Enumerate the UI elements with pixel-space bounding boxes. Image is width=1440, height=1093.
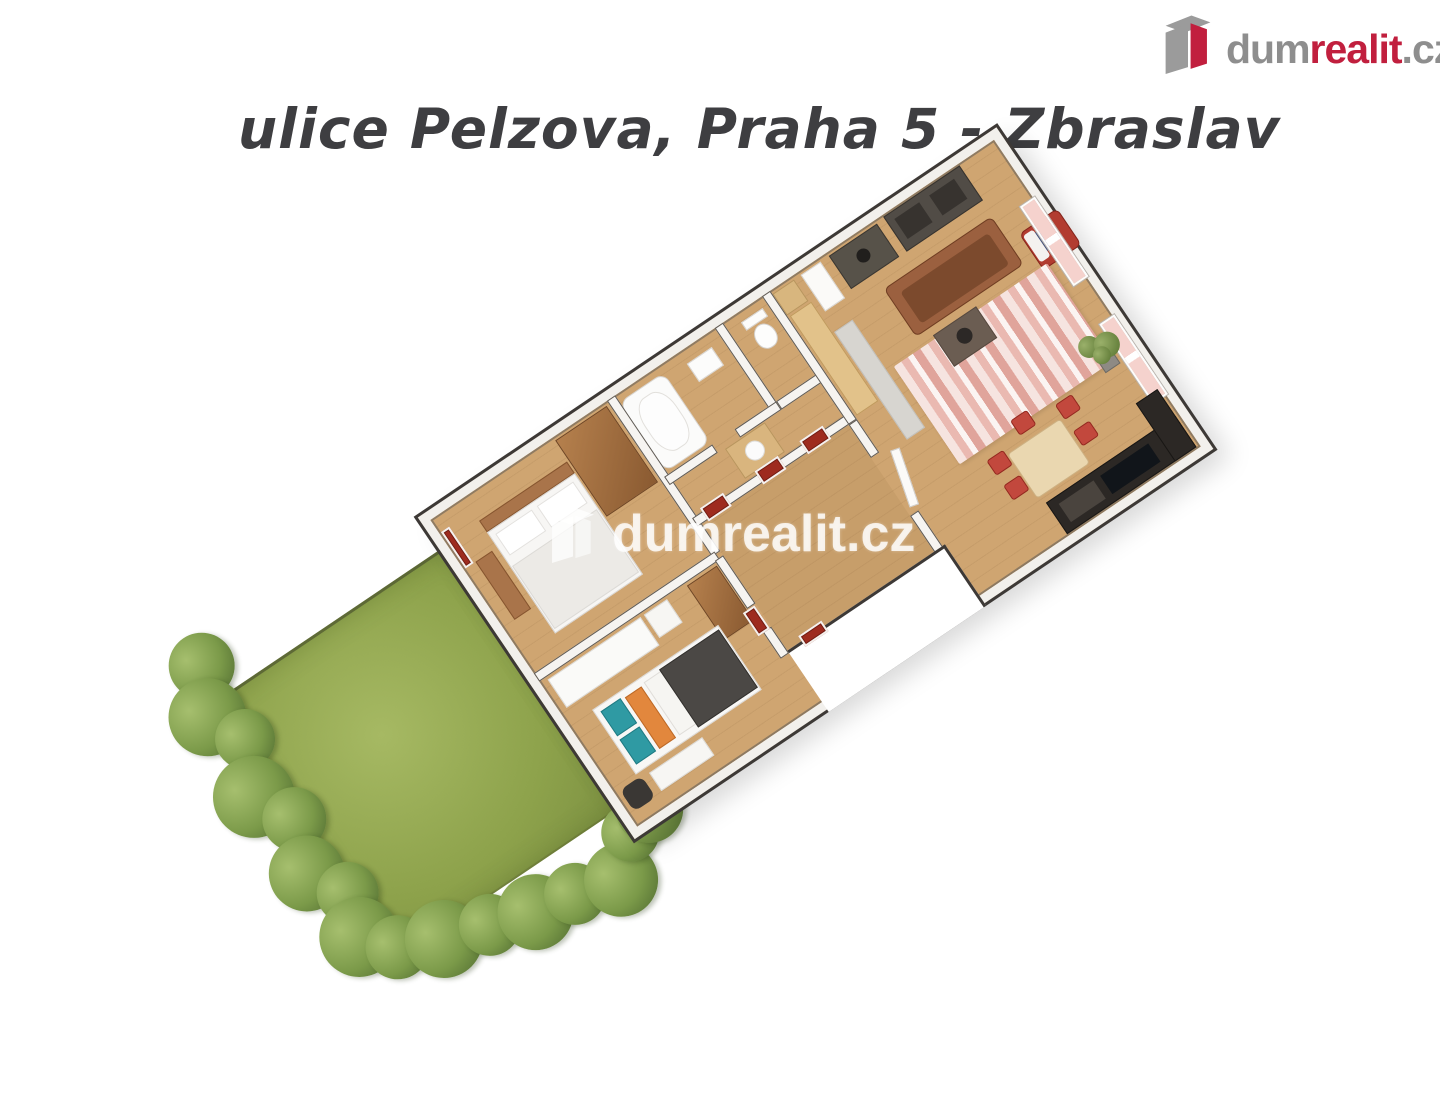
brand-dum: dum	[1226, 26, 1310, 72]
wall-wc-hall	[776, 373, 823, 409]
page-title: ulice Pelzova, Praha 5 - Zbraslav	[238, 97, 1298, 161]
floor-plan-3d	[148, 79, 1268, 1069]
brand-wordmark: dumrealit.cz	[1226, 29, 1440, 74]
brand-cz: .cz	[1402, 26, 1440, 72]
desk-chair	[620, 776, 656, 812]
bathroom-sink	[687, 347, 724, 382]
brand-realit: realit	[1310, 26, 1402, 72]
dumrealit-logo-icon	[1160, 12, 1216, 74]
floorplan-page: { "header": { "title": "ulice Pelzova, P…	[0, 0, 1440, 1080]
dining-chair	[1055, 394, 1082, 420]
brand-logo: dumrealit.cz	[1160, 12, 1440, 74]
